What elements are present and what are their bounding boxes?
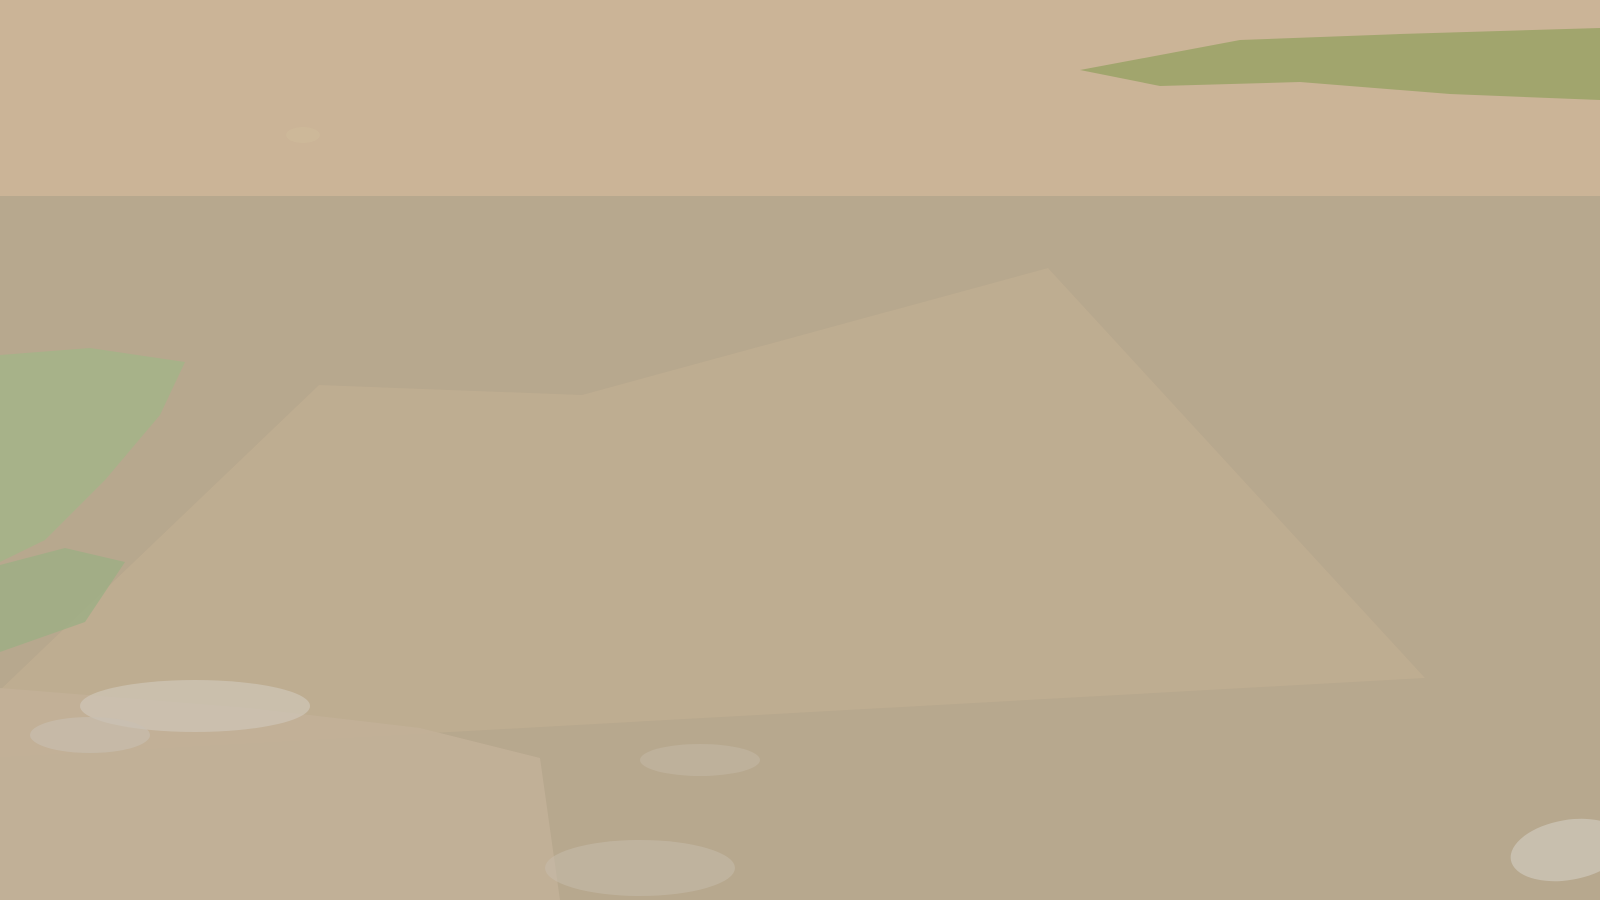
aerial-photograph [0,0,1600,900]
top-fields [0,0,1600,196]
aerial-scene [0,0,1600,900]
